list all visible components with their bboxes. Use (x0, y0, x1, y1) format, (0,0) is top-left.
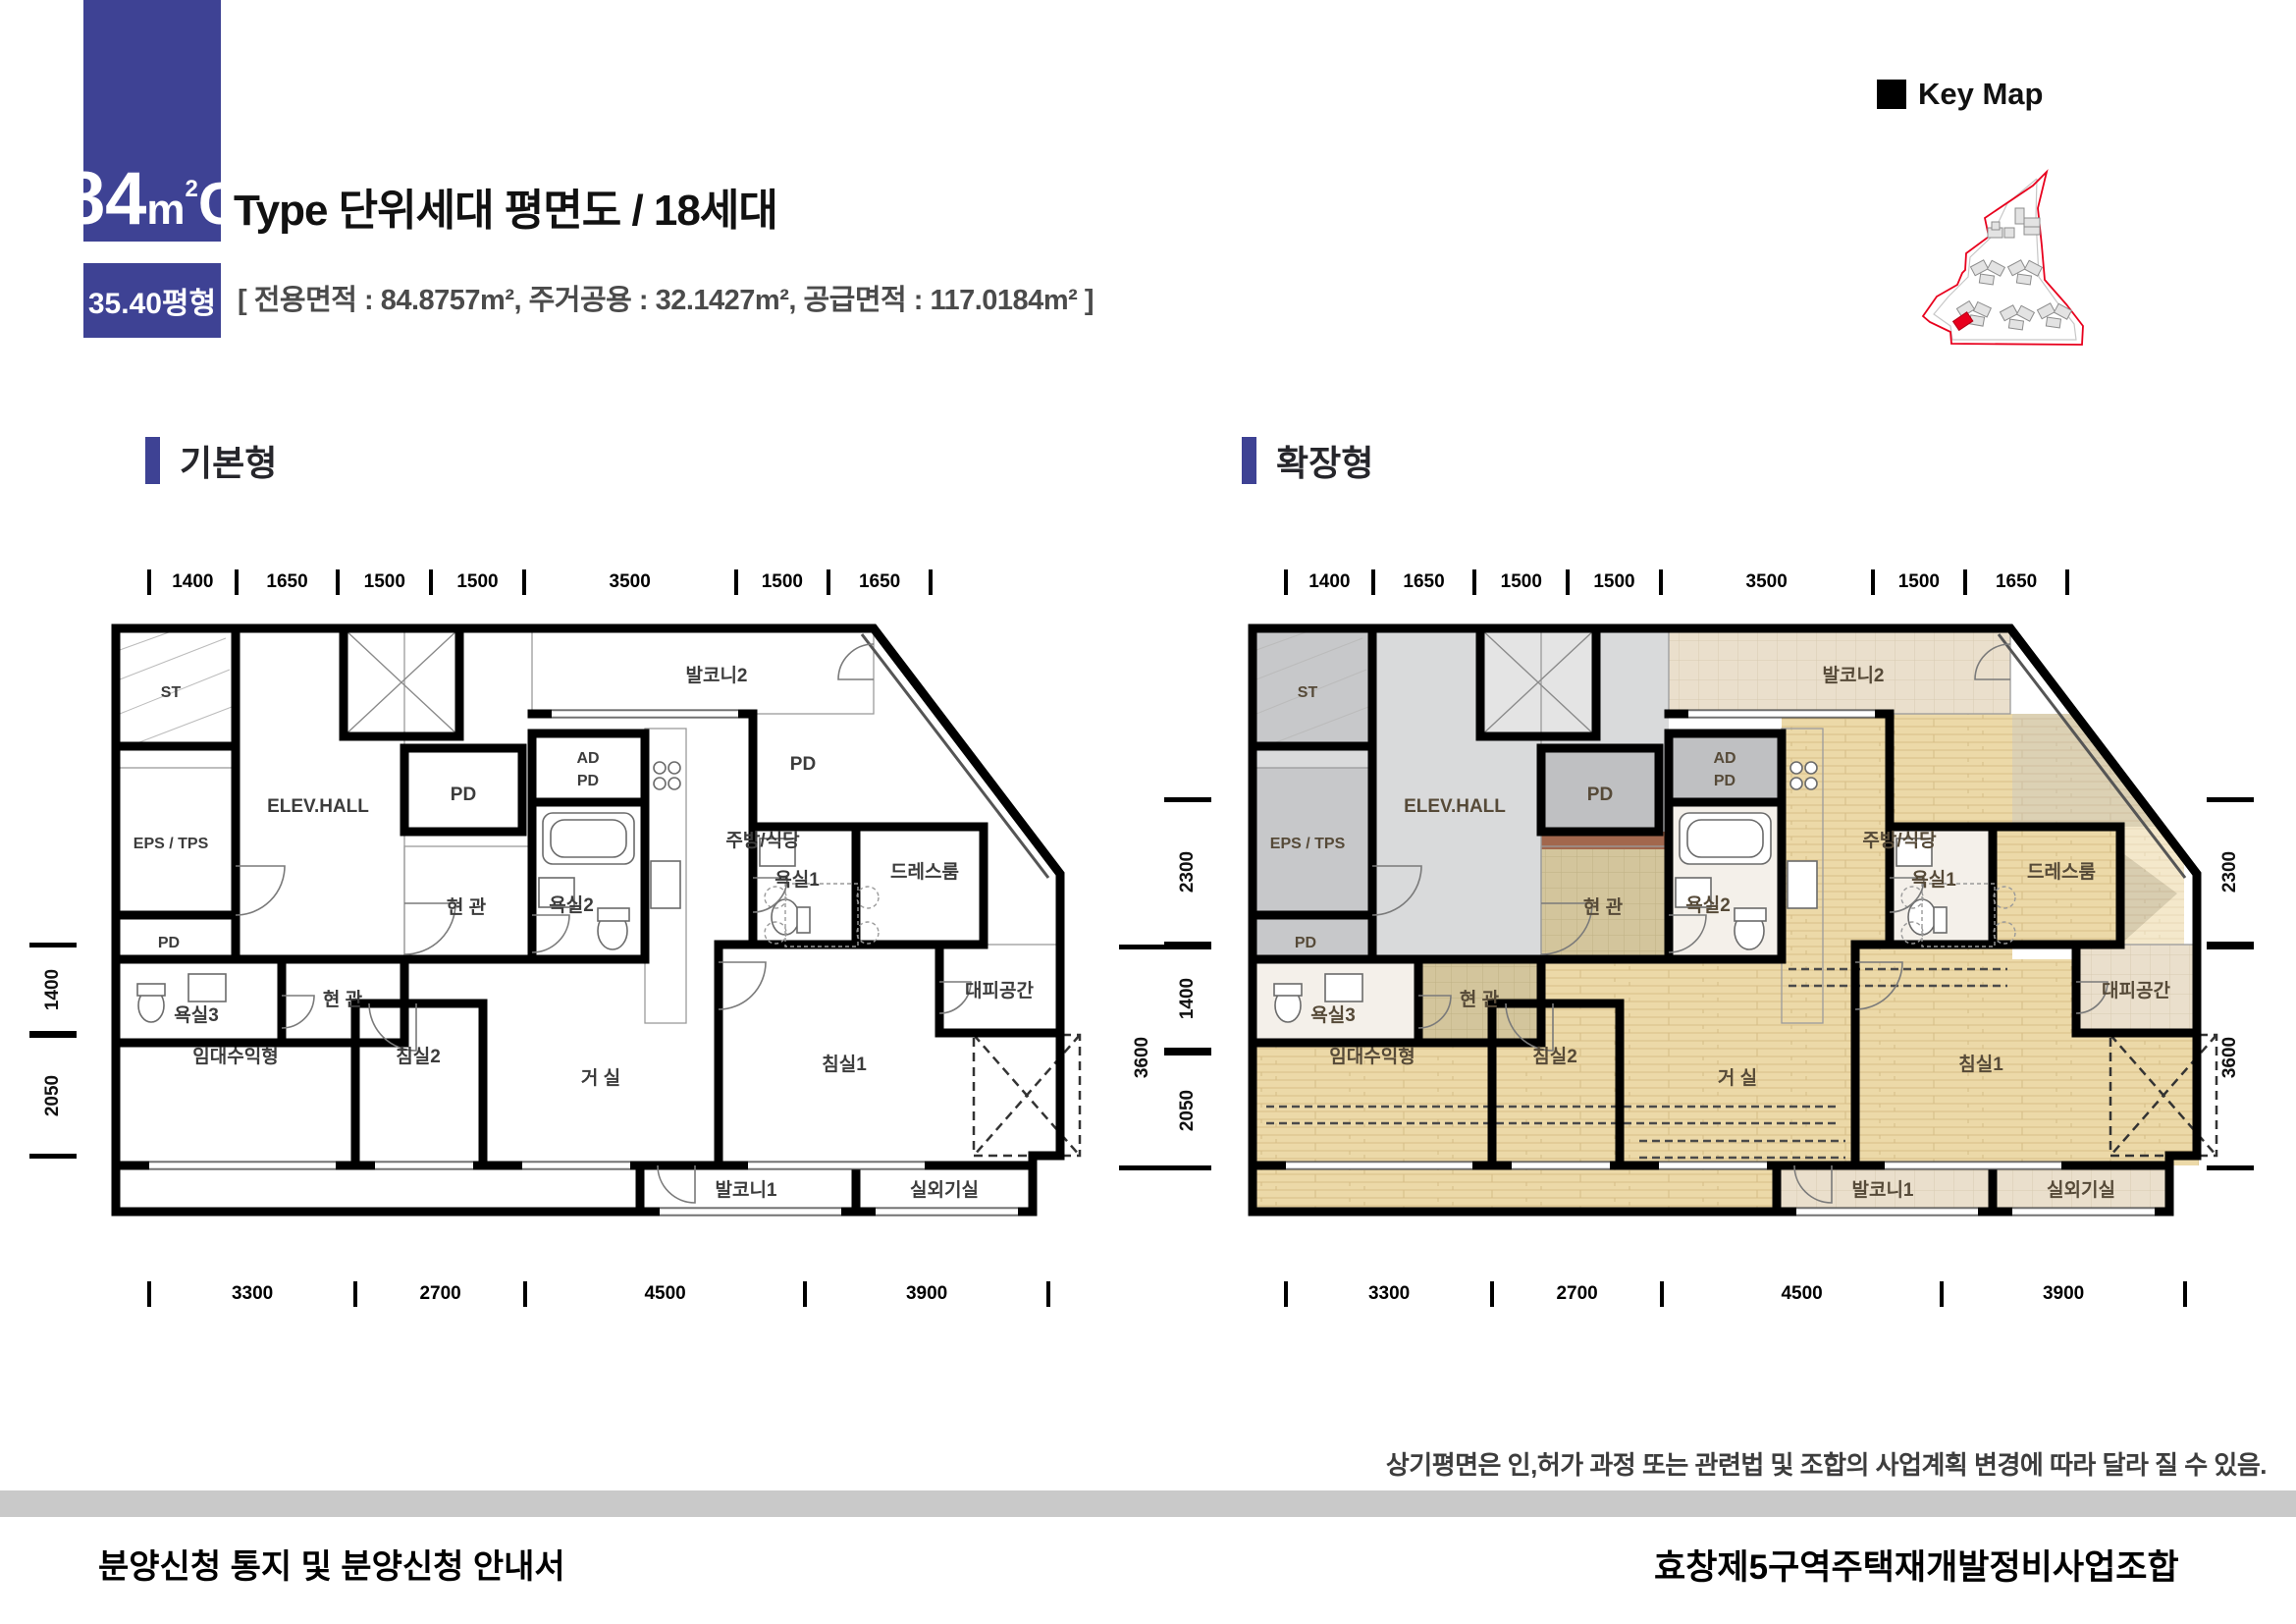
room-label-bed1: 침실1 (822, 1054, 867, 1075)
room-label-entry: 현 관 (323, 989, 363, 1010)
dim-label: 1400 (1308, 571, 1350, 593)
dim-label: 3500 (1746, 571, 1788, 593)
disclaimer-note: 상기평면은 인,허가 과정 또는 관련법 및 조합의 사업계획 변경에 따라 달… (1386, 1445, 2267, 1482)
dim-left-1400: 1400 (29, 943, 77, 1036)
room-label-kitchen: 주방/식당 (1862, 830, 1937, 851)
pyeong-badge: 35.40평형 (83, 263, 221, 338)
footer-divider (0, 1490, 2296, 1517)
type-badge: 84m2C (83, 0, 221, 242)
room-label-pd: PD (577, 773, 599, 789)
dim-label: 1500 (1501, 571, 1542, 593)
room-label-living: 거 실 (581, 1067, 620, 1089)
page: { "header": { "type_number": "84", "type… (0, 0, 2296, 1624)
room-label-st: ST (1298, 684, 1318, 701)
section-bar-icon (145, 437, 160, 484)
room-label-balcony2: 발코니2 (1822, 665, 1884, 686)
dim-label: 1650 (1996, 571, 2037, 593)
room-label-pd: PD (158, 935, 180, 951)
dim-row-top-basic: 1400 1650 1500 1500 3500 1500 1650 (147, 569, 933, 595)
area-info: [ 전용면적 : 84.8757m², 주거공용 : 32.1427m², 공급… (238, 277, 1094, 318)
dim-label: 3300 (1368, 1283, 1410, 1305)
section-extended-label: 확장형 (1276, 435, 1373, 486)
keymap-label: Key Map (1918, 77, 2043, 112)
room-label-elev-hall: ELEV.HALL (267, 796, 369, 817)
dim-label: 3900 (2043, 1283, 2084, 1305)
section-bar-icon (1242, 437, 1256, 484)
dim-label: 3300 (232, 1283, 273, 1305)
page-title: Type 단위세대 평면도 / 18세대 (234, 175, 777, 238)
room-label-bed2: 침실2 (396, 1046, 441, 1067)
room-label-bath1: 욕실1 (774, 869, 820, 891)
room-label-ad: AD (576, 750, 599, 767)
keymap-square-icon (1877, 80, 1906, 109)
dim-label: 3500 (610, 571, 651, 593)
section-basic-label: 기본형 (180, 435, 277, 486)
keymap (1890, 110, 2194, 395)
dim-label: 1650 (266, 571, 307, 593)
dim-row-bottom-extended: 3300 2700 4500 3900 (1284, 1281, 2187, 1307)
room-label-balcony1: 발코니1 (715, 1179, 776, 1201)
room-label-rental: 임대수익형 (192, 1046, 278, 1067)
room-label-pd: PD (790, 754, 816, 775)
floorplan-extended: ST ELEV.HALL PD AD PD 발코니2 주방/식당 욕실2 현 관… (1247, 621, 2228, 1224)
section-extended: 확장형 (1242, 435, 1373, 486)
room-label-eps-tps: EPS / TPS (133, 836, 209, 852)
room-label-bath1: 욕실1 (1911, 869, 1956, 891)
dim-label: 1400 (172, 571, 213, 593)
room-label-rental: 임대수익형 (1329, 1046, 1415, 1067)
room-label-outdoor: 실외기실 (910, 1179, 979, 1201)
room-label-pd: PD (1714, 773, 1735, 789)
room-label-bed2: 침실2 (1532, 1046, 1577, 1067)
section-basic: 기본형 (145, 435, 277, 486)
dim-left-2050: 2050 (29, 1033, 77, 1159)
room-label-entry: 현 관 (447, 896, 487, 918)
keymap-highlight-building (1953, 312, 1973, 331)
dim-label: 1650 (1403, 571, 1444, 593)
type-sup: 2 (185, 176, 197, 202)
dim-label: 2700 (419, 1283, 460, 1305)
room-label-bath2: 욕실2 (549, 894, 594, 916)
dim-label: 4500 (644, 1283, 685, 1305)
dim-label: 2700 (1556, 1283, 1597, 1305)
room-label-pd: PD (1295, 935, 1316, 951)
room-label-bath3: 욕실3 (174, 1004, 219, 1026)
dim-right-basic-1400: 1400 (1164, 945, 1211, 1053)
dim-label: 1500 (456, 571, 498, 593)
type-unit: m (146, 186, 185, 234)
floorplan-basic: ST ELEV.HALL PD AD PD 발코니2 주방/식당 PD 욕실2 … (110, 621, 1092, 1224)
dim-label: 1500 (762, 571, 803, 593)
dim-row-bottom-basic: 3300 2700 4500 3900 (147, 1281, 1050, 1307)
dim-label: 1500 (364, 571, 405, 593)
room-label-balcony1: 발코니1 (1851, 1179, 1913, 1201)
dim-label: 1500 (1898, 571, 1940, 593)
room-label-balcony2: 발코니2 (685, 665, 747, 686)
room-label-kitchen: 주방/식당 (725, 830, 800, 851)
room-label-ad: AD (1713, 750, 1735, 767)
dim-label: 4500 (1781, 1283, 1822, 1305)
dim-label: 3900 (906, 1283, 947, 1305)
dim-right-basic-2300: 2300 (1164, 797, 1211, 947)
dim-label: 1650 (859, 571, 900, 593)
dim-label: 1500 (1593, 571, 1634, 593)
dim-right-basic-3600: 3600 (1119, 945, 1166, 1170)
room-label-entry: 현 관 (1460, 989, 1500, 1010)
dim-right-basic-2050: 2050 (1164, 1051, 1211, 1170)
keymap-title: Key Map (1877, 77, 2043, 112)
room-label-pd: PD (451, 785, 476, 805)
room-label-living: 거 실 (1718, 1067, 1757, 1089)
footer-left-title: 분양신청 통지 및 분양신청 안내서 (98, 1540, 565, 1588)
room-label-evac: 대피공간 (2102, 980, 2170, 1001)
footer-right-title: 효창제5구역주택재개발정비사업조합 (1654, 1540, 2179, 1590)
room-label-st: ST (161, 684, 182, 701)
room-label-dress: 드레스룸 (2027, 861, 2096, 883)
room-label-dress: 드레스룸 (890, 861, 959, 883)
room-label-bed1: 침실1 (1958, 1054, 2003, 1075)
room-label-outdoor: 실외기실 (2047, 1179, 2115, 1201)
dim-row-top-extended: 1400 1650 1500 1500 3500 1500 1650 (1284, 569, 2069, 595)
room-label-pd: PD (1587, 785, 1613, 805)
room-label-entry: 현 관 (1583, 896, 1624, 918)
room-label-eps-tps: EPS / TPS (1270, 836, 1346, 852)
room-label-bath2: 욕실2 (1685, 894, 1731, 916)
room-label-elev-hall: ELEV.HALL (1404, 796, 1506, 817)
room-label-evac: 대피공간 (965, 980, 1034, 1001)
type-number: 84 (64, 157, 147, 241)
room-label-bath3: 욕실3 (1310, 1004, 1356, 1026)
